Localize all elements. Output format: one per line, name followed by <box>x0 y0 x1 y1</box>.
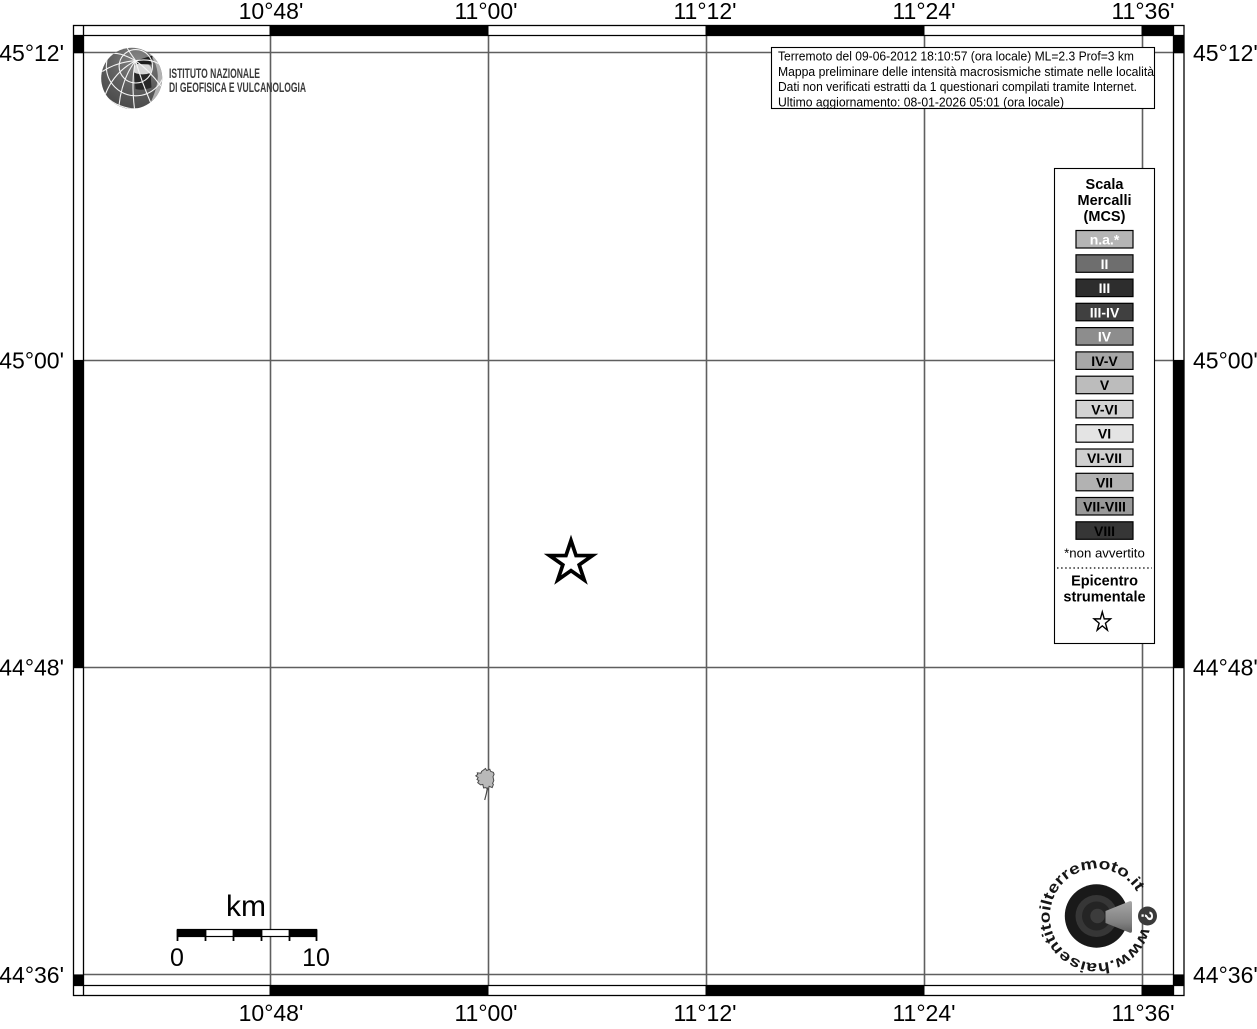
svg-text:*non avvertito: *non avvertito <box>1064 546 1145 561</box>
svg-text:Ultimo aggiornamento: 08-01-20: Ultimo aggiornamento: 08-01-2026 05:01 (… <box>778 94 1064 109</box>
svg-text:ISTITUTO NAZIONALE: ISTITUTO NAZIONALE <box>169 66 260 81</box>
svg-text:Terremoto del 09-06-2012 18:10: Terremoto del 09-06-2012 18:10:57 (ora l… <box>778 49 1134 64</box>
svg-text:11°00': 11°00' <box>454 1000 517 1024</box>
svg-text:45°00': 45°00' <box>0 347 64 373</box>
svg-text:45°12': 45°12' <box>0 40 64 66</box>
svg-text:VIII: VIII <box>1094 523 1115 539</box>
svg-text:n.a.*: n.a.* <box>1090 232 1120 248</box>
svg-text:III-IV: III-IV <box>1090 304 1120 320</box>
svg-text:11°12': 11°12' <box>673 0 736 24</box>
svg-text:45°00': 45°00' <box>1193 347 1257 373</box>
svg-text:45°12': 45°12' <box>1193 40 1257 66</box>
svg-text:44°36': 44°36' <box>0 962 64 988</box>
svg-text:11°36': 11°36' <box>1111 0 1174 24</box>
svg-text:10°48': 10°48' <box>239 1000 304 1024</box>
svg-text:Mercalli: Mercalli <box>1078 193 1132 209</box>
svg-text:11°00': 11°00' <box>454 0 517 24</box>
svg-text:0: 0 <box>170 944 184 972</box>
svg-text:Mappa preliminare delle intens: Mappa preliminare delle intensità macros… <box>778 64 1155 79</box>
svg-text:(MCS): (MCS) <box>1084 209 1126 225</box>
svg-text:11°36': 11°36' <box>1111 1000 1174 1024</box>
svg-text:10°48': 10°48' <box>239 0 304 24</box>
svg-text:V-VI: V-VI <box>1091 401 1117 417</box>
svg-text:VI-VII: VI-VII <box>1087 450 1122 466</box>
svg-text:III: III <box>1099 280 1111 296</box>
svg-text:IV: IV <box>1098 329 1112 345</box>
svg-text:44°48': 44°48' <box>0 655 64 681</box>
svg-text:10: 10 <box>302 944 330 972</box>
svg-text:VI: VI <box>1098 426 1111 442</box>
svg-text:11°12': 11°12' <box>673 1000 736 1024</box>
svg-text:DI GEOFISICA E VULCANOLOGIA: DI GEOFISICA E VULCANOLOGIA <box>169 80 306 95</box>
svg-text:VII-VIII: VII-VIII <box>1083 499 1126 515</box>
svg-text:km: km <box>226 890 266 923</box>
svg-text:V: V <box>1100 377 1110 393</box>
svg-text:strumentale: strumentale <box>1063 590 1145 606</box>
svg-text:VII: VII <box>1096 474 1113 490</box>
svg-text:Dati non verificati estratti d: Dati non verificati estratti da 1 questi… <box>778 79 1137 94</box>
svg-text:Scala: Scala <box>1086 177 1125 193</box>
svg-text:11°24': 11°24' <box>892 0 955 24</box>
svg-text:?: ? <box>1138 911 1157 921</box>
svg-text:IV-V: IV-V <box>1091 353 1118 369</box>
svg-text:44°36': 44°36' <box>1193 962 1257 988</box>
svg-text:II: II <box>1101 256 1109 272</box>
svg-text:44°48': 44°48' <box>1193 655 1257 681</box>
svg-text:11°24': 11°24' <box>892 1000 955 1024</box>
svg-text:Epicentro: Epicentro <box>1071 574 1138 590</box>
